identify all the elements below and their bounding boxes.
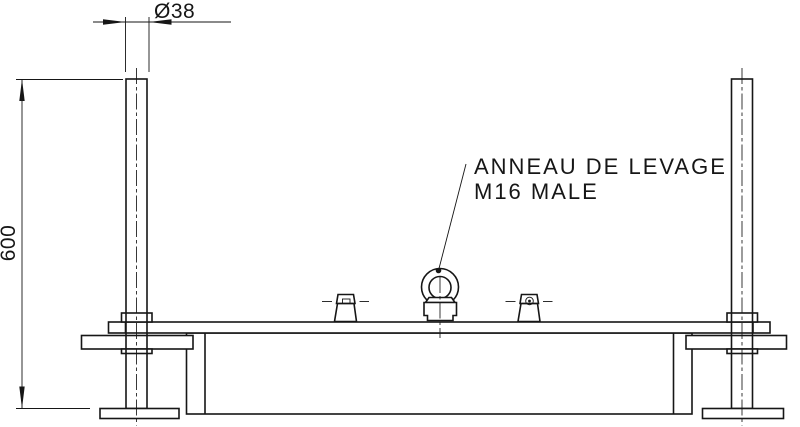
leader-dot — [436, 268, 442, 274]
right-clamp-plate — [686, 336, 787, 350]
left-foot-plate — [100, 409, 179, 419]
left-clamp-fixture — [322, 295, 369, 322]
leader-line — [436, 164, 466, 273]
right-clamp-fixture — [506, 295, 553, 322]
lifting-ring-label: ANNEAU DE LEVAGE M16 MALE — [474, 154, 727, 204]
right-foot-plate — [703, 409, 784, 419]
right-fixture-screw-dot — [528, 300, 531, 303]
tabletop-beam — [109, 322, 771, 333]
height-arrow-bottom — [19, 387, 24, 409]
right-post — [703, 68, 784, 426]
left-fixture-base — [335, 304, 357, 322]
height-arrow-top — [19, 79, 24, 101]
height-dimension-text: 600 — [0, 225, 20, 262]
beam-body — [109, 322, 771, 333]
base-frame-outline — [187, 333, 693, 414]
technical-drawing: ANNEAU DE LEVAGE M16 MALE Ø38 600 — [0, 0, 800, 427]
lifting-ring-label-line1: ANNEAU DE LEVAGE — [474, 154, 727, 179]
base-frame — [187, 333, 693, 414]
lifting-ring-label-line2: M16 MALE — [474, 179, 599, 204]
leader-line-segment — [439, 164, 467, 271]
left-post — [100, 68, 179, 426]
left-clamp-plate — [82, 336, 194, 350]
diameter-arrow-left — [103, 19, 126, 24]
diameter-dimension-text: Ø38 — [154, 0, 195, 23]
height-dimension: 600 — [0, 79, 123, 409]
diameter-dimension: Ø38 — [93, 0, 231, 72]
right-fixture-base — [518, 304, 540, 322]
